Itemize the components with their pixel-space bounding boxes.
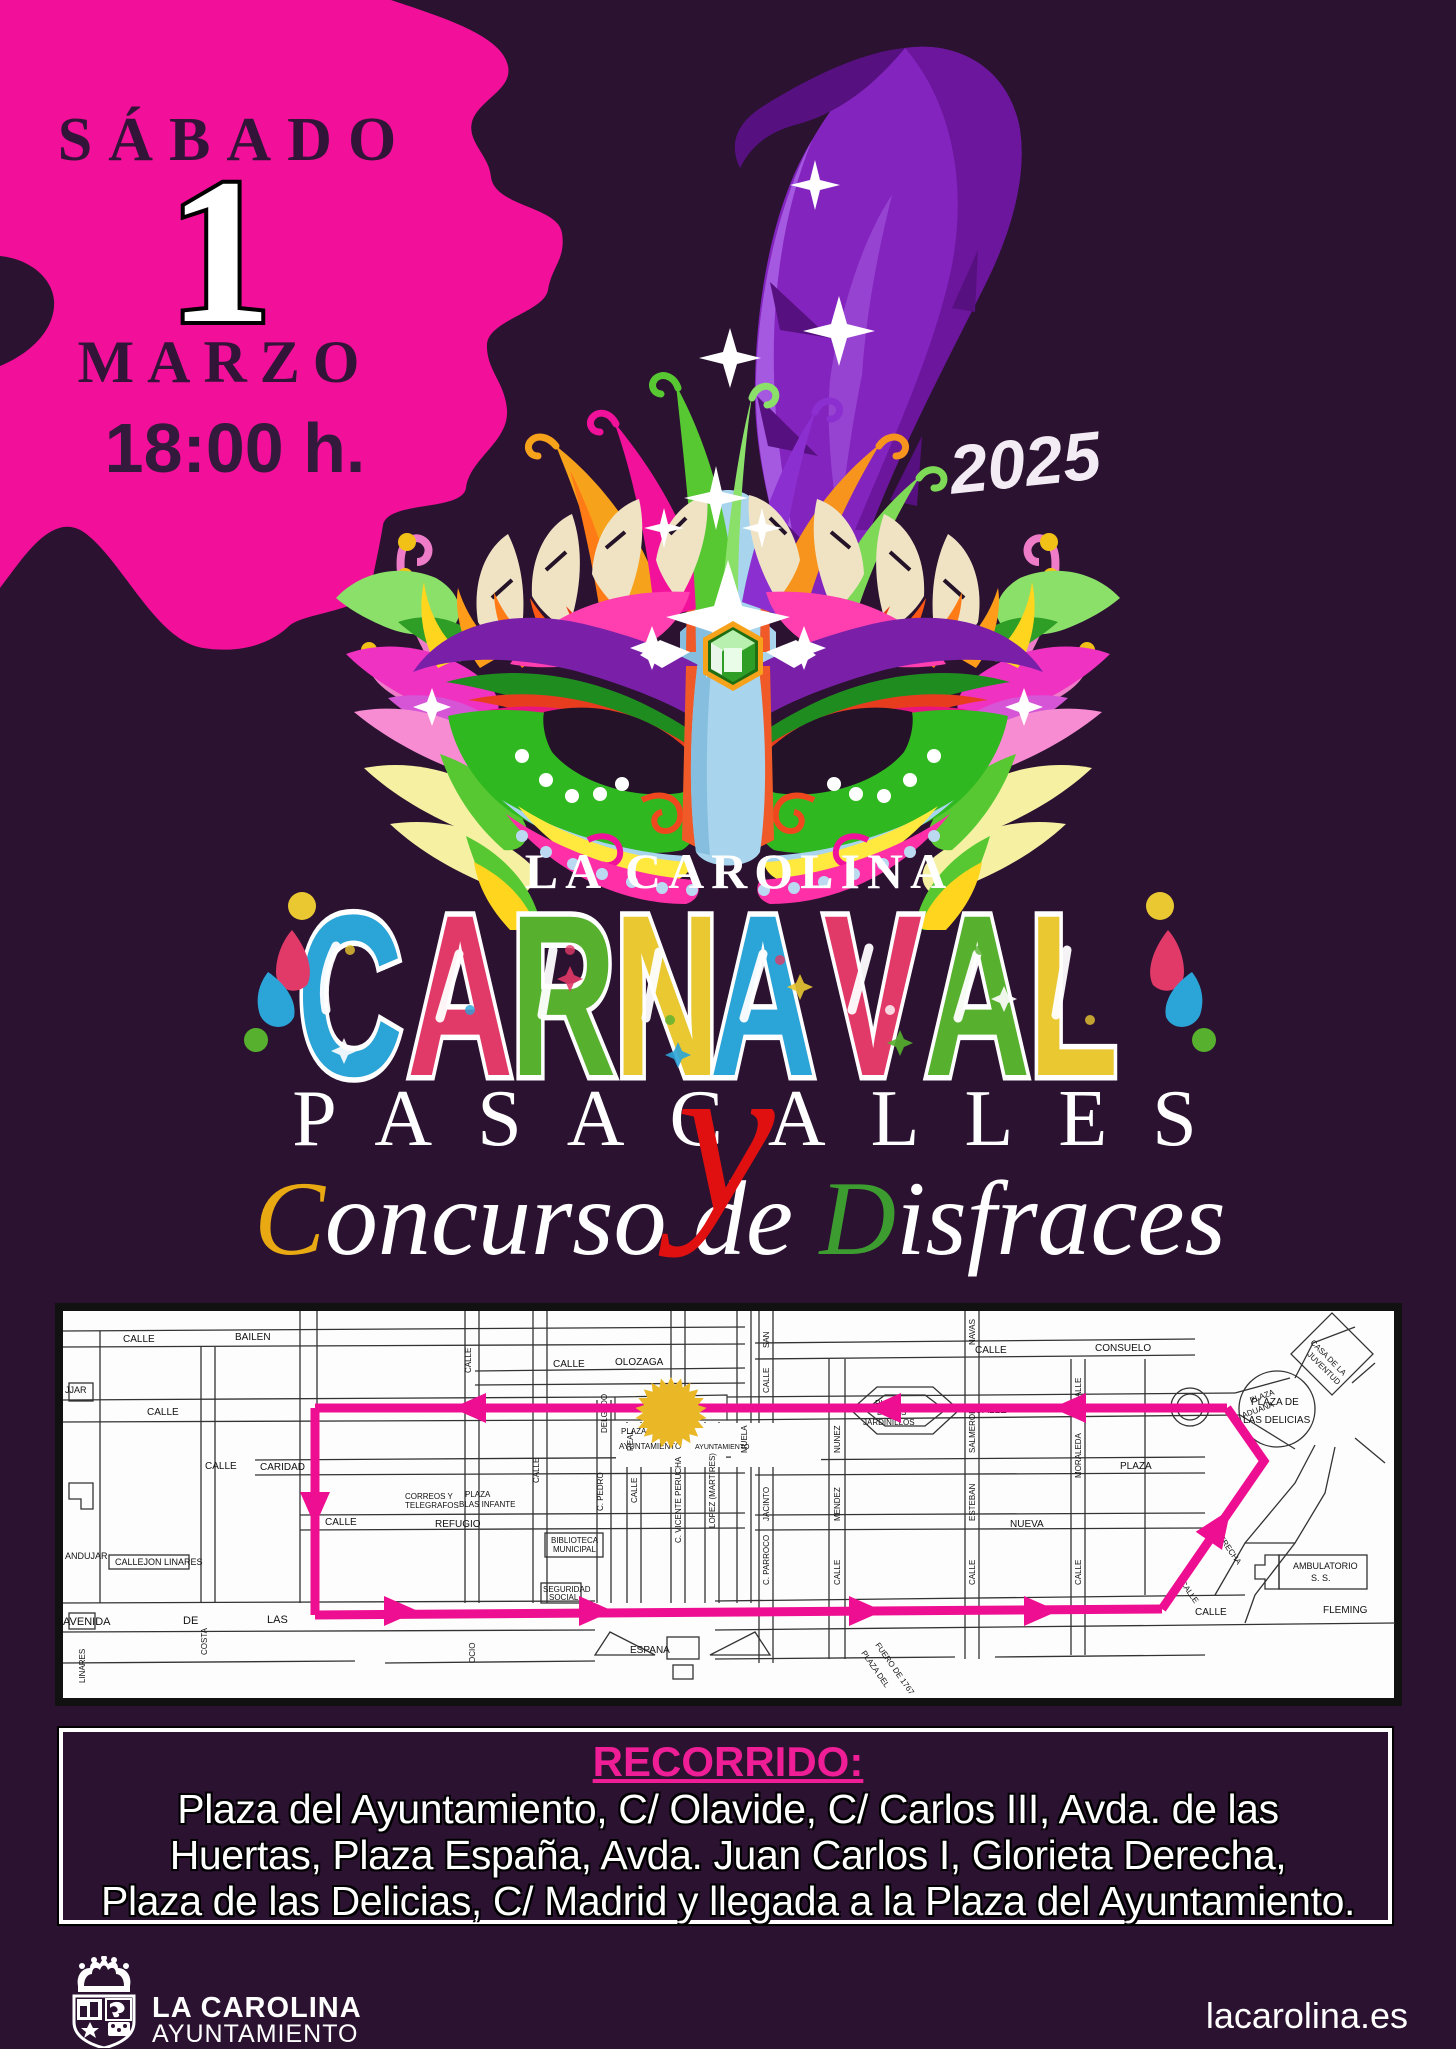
svg-text:1: 1	[168, 158, 272, 350]
svg-text:REFUGIO: REFUGIO	[435, 1519, 481, 1530]
svg-text:S. S.: S. S.	[1311, 1573, 1331, 1583]
svg-text:CALLE: CALLE	[532, 1458, 541, 1483]
svg-text:CALLE: CALLE	[325, 1517, 357, 1528]
svg-text:BIBLIOTECA: BIBLIOTECA	[551, 1536, 599, 1545]
svg-text:CORREOS Y: CORREOS Y	[405, 1492, 454, 1501]
svg-text:PLAZA: PLAZA	[465, 1490, 491, 1499]
svg-text:SOCIAL: SOCIAL	[549, 1593, 579, 1602]
svg-text:PLAZA DE: PLAZA DE	[1251, 1397, 1299, 1408]
svg-text:DE: DE	[183, 1615, 198, 1627]
svg-text:ANDUJAR: ANDUJAR	[65, 1551, 108, 1561]
svg-text:PLAZA: PLAZA	[1120, 1461, 1152, 1472]
svg-text:JARDINILLOS: JARDINILLOS	[863, 1418, 915, 1427]
svg-text:CALLE: CALLE	[1074, 1560, 1083, 1585]
svg-text:MUELA: MUELA	[740, 1425, 749, 1453]
svg-text:FLEMING: FLEMING	[1323, 1605, 1368, 1616]
svg-text:NAVAS: NAVAS	[968, 1319, 977, 1345]
svg-text:SALMERON: SALMERON	[968, 1408, 977, 1453]
svg-text:CALLE: CALLE	[833, 1560, 842, 1585]
svg-text:LOPEZ (MARTIRES): LOPEZ (MARTIRES)	[708, 1453, 717, 1528]
svg-text:CALLE: CALLE	[205, 1461, 237, 1472]
svg-text:REAL: REAL	[626, 1430, 635, 1451]
svg-text:BLAS INFANTE: BLAS INFANTE	[459, 1500, 515, 1509]
svg-text:MENDEZ: MENDEZ	[833, 1487, 842, 1521]
svg-text:CALLE: CALLE	[553, 1359, 585, 1370]
svg-text:JACINTO: JACINTO	[762, 1487, 771, 1521]
svg-text:CARIDAD: CARIDAD	[260, 1462, 305, 1473]
svg-text:CALLE: CALLE	[123, 1334, 155, 1345]
svg-text:CALLEJON LINARES: CALLEJON LINARES	[115, 1557, 203, 1567]
svg-text:CALLE: CALLE	[147, 1407, 179, 1418]
svg-text:CALLE: CALLE	[975, 1345, 1007, 1356]
svg-text:TELEGRAFOS: TELEGRAFOS	[405, 1501, 459, 1510]
svg-text:JJAR: JJAR	[65, 1385, 87, 1395]
svg-text:NUEVA: NUEVA	[1010, 1519, 1044, 1530]
svg-text:C. PARROCO: C. PARROCO	[762, 1535, 771, 1585]
svg-text:NUNEZ: NUNEZ	[833, 1425, 842, 1453]
svg-text:CONSUELO: CONSUELO	[1095, 1343, 1151, 1354]
svg-text:CALLE: CALLE	[762, 1368, 771, 1393]
svg-text:ESTEBAN: ESTEBAN	[968, 1483, 977, 1521]
svg-text:MORALEDA: MORALEDA	[1074, 1432, 1083, 1478]
svg-text:BAILEN: BAILEN	[235, 1332, 271, 1343]
svg-text:C. VICENTE PERUCHA: C. VICENTE PERUCHA	[674, 1456, 683, 1543]
svg-text:AVENIDA: AVENIDA	[63, 1616, 111, 1628]
svg-text:COSTA: COSTA	[200, 1627, 209, 1655]
svg-text:LAS DELICIAS: LAS DELICIAS	[1243, 1415, 1311, 1426]
svg-text:CALLE: CALLE	[1195, 1607, 1227, 1618]
svg-text:OLOZAGA: OLOZAGA	[615, 1357, 664, 1368]
svg-text:ESPANA: ESPANA	[630, 1645, 670, 1656]
svg-text:MUNICIPAL: MUNICIPAL	[553, 1545, 597, 1554]
svg-text:LAS: LAS	[267, 1614, 288, 1626]
svg-text:OCIO: OCIO	[468, 1643, 477, 1663]
svg-text:CALLE: CALLE	[464, 1348, 473, 1373]
svg-text:SAN: SAN	[762, 1331, 771, 1348]
svg-text:C. PEDRO: C. PEDRO	[596, 1472, 605, 1511]
svg-text:AMBULATORIO: AMBULATORIO	[1293, 1561, 1358, 1571]
svg-text:CALLE: CALLE	[968, 1560, 977, 1585]
svg-text:DELGADO: DELGADO	[600, 1394, 609, 1433]
svg-text:LINARES: LINARES	[78, 1649, 87, 1683]
svg-text:CALLE: CALLE	[630, 1478, 639, 1503]
